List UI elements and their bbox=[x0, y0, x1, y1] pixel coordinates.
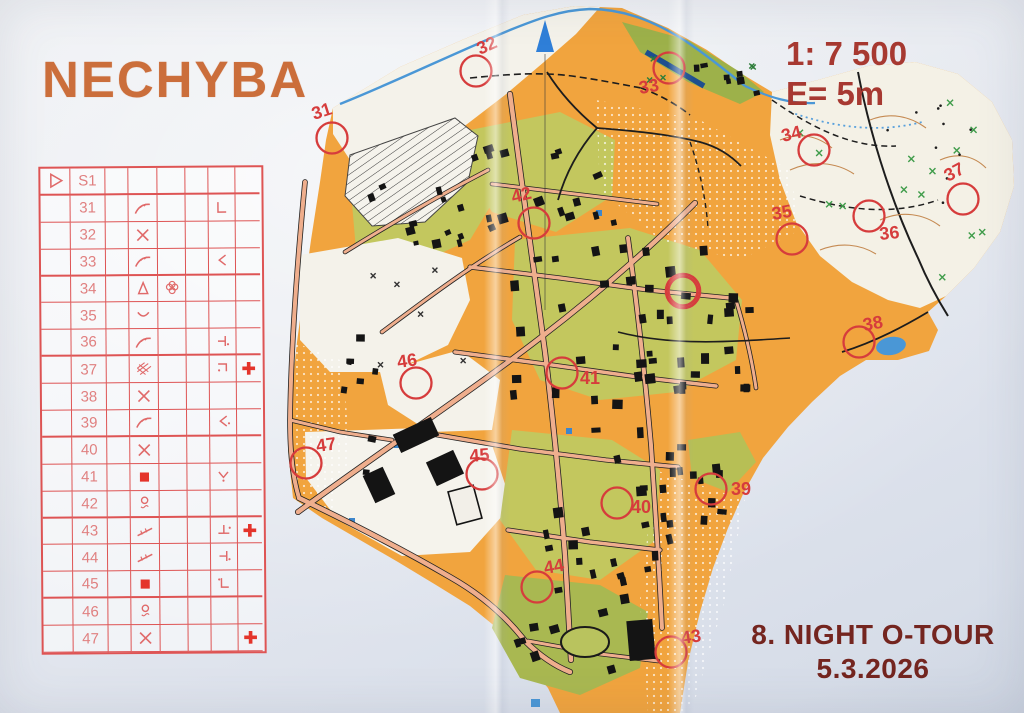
card-cell bbox=[106, 249, 129, 276]
card-cell bbox=[159, 410, 187, 437]
card-cell: 47 bbox=[74, 625, 109, 652]
card-cell bbox=[161, 625, 189, 652]
card-cell bbox=[160, 544, 188, 571]
control-description-sheet: S13132333435363738394041424344454647 bbox=[38, 165, 266, 655]
card-cell bbox=[211, 490, 238, 517]
angle-left-icon bbox=[209, 248, 236, 275]
control-number-cell: 33 bbox=[80, 253, 97, 270]
card-cell bbox=[157, 168, 185, 195]
fence-icon bbox=[131, 544, 160, 571]
crosshatch-icon bbox=[130, 356, 159, 383]
card-cell: 33 bbox=[71, 249, 106, 276]
card-cell bbox=[188, 490, 211, 517]
card-cell bbox=[108, 545, 131, 572]
corner-icon bbox=[208, 194, 235, 221]
first-aid-icon bbox=[238, 517, 262, 544]
control-number-cell: 39 bbox=[81, 414, 98, 431]
card-cell bbox=[160, 490, 188, 517]
card-cell bbox=[187, 410, 210, 437]
control-number: 38 bbox=[861, 312, 884, 335]
card-cell bbox=[186, 302, 209, 329]
card-cell bbox=[158, 248, 186, 275]
card-cell: 37 bbox=[72, 357, 107, 384]
card-cell bbox=[238, 571, 262, 598]
card-cell bbox=[187, 383, 210, 410]
control-number-cell: 37 bbox=[80, 361, 97, 378]
card-cell bbox=[237, 382, 261, 409]
control-number-cell: 31 bbox=[79, 200, 96, 217]
card-cell bbox=[187, 463, 210, 490]
start-code: S1 bbox=[78, 172, 96, 189]
card-cell bbox=[106, 222, 129, 249]
earth-bank-icon bbox=[129, 329, 158, 356]
card-cell bbox=[236, 302, 260, 329]
card-cell bbox=[108, 518, 131, 545]
card-cell bbox=[43, 599, 73, 626]
vee-dot-icon bbox=[210, 463, 237, 490]
fence-icon bbox=[131, 518, 160, 545]
card-cell: 31 bbox=[71, 195, 106, 222]
contour-interval: E= 5m bbox=[786, 74, 907, 114]
card-cell bbox=[160, 598, 188, 625]
card-cell bbox=[44, 626, 74, 653]
map-photo: 3132333435363738394041424344454647 NECHY… bbox=[0, 0, 1024, 713]
card-cell bbox=[235, 167, 259, 194]
crossing-icon bbox=[130, 383, 159, 410]
card-cell bbox=[211, 598, 238, 625]
control-number: 45 bbox=[469, 444, 491, 466]
card-cell bbox=[210, 383, 237, 410]
spring-icon bbox=[131, 491, 160, 518]
map-title: NECHYBA bbox=[42, 50, 308, 109]
card-cell bbox=[187, 437, 210, 464]
card-cell bbox=[160, 571, 188, 598]
card-cell bbox=[236, 329, 260, 356]
card-cell bbox=[128, 168, 157, 195]
event-name: 8. NIGHT O-TOUR bbox=[728, 618, 1018, 652]
control-number: 47 bbox=[315, 433, 338, 456]
control-number: 36 bbox=[878, 222, 900, 244]
card-cell bbox=[185, 194, 208, 221]
control-number: 46 bbox=[396, 349, 419, 372]
control-number: 43 bbox=[680, 625, 703, 648]
card-cell bbox=[41, 303, 71, 330]
card-cell bbox=[158, 302, 186, 329]
control-number-cell: 45 bbox=[82, 576, 99, 593]
card-cell bbox=[42, 437, 72, 464]
card-cell: 41 bbox=[72, 464, 107, 491]
card-cell: 38 bbox=[72, 383, 107, 410]
control-number: 40 bbox=[631, 497, 651, 517]
control-number-cell: 43 bbox=[81, 522, 98, 539]
control-number-cell: 40 bbox=[81, 442, 98, 459]
card-cell bbox=[160, 517, 188, 544]
start-triangle-icon bbox=[40, 169, 70, 196]
card-cell bbox=[159, 356, 187, 383]
card-cell bbox=[157, 195, 185, 222]
stadium-track bbox=[561, 627, 609, 657]
card-cell bbox=[41, 330, 71, 357]
event-date: 5.3.2026 bbox=[728, 652, 1018, 686]
event-block: 8. NIGHT O-TOUR 5.3.2026 bbox=[728, 618, 1018, 686]
card-cell bbox=[186, 275, 209, 302]
card-cell bbox=[187, 356, 210, 383]
card-cell bbox=[188, 544, 211, 571]
card-cell bbox=[188, 517, 211, 544]
control-number: 39 bbox=[731, 479, 751, 499]
card-cell bbox=[188, 571, 211, 598]
corner-top-dot-icon bbox=[210, 356, 237, 383]
card-cell: 32 bbox=[71, 222, 106, 249]
card-cell: 42 bbox=[73, 491, 108, 518]
card-cell bbox=[41, 249, 71, 276]
card-cell bbox=[108, 491, 131, 518]
card-cell bbox=[209, 302, 236, 329]
card-cell bbox=[238, 544, 262, 571]
card-cell bbox=[189, 625, 212, 652]
card-cell bbox=[238, 597, 262, 624]
card-cell bbox=[42, 357, 72, 384]
card-cell bbox=[106, 330, 129, 357]
card-cell bbox=[106, 276, 129, 303]
card-cell bbox=[238, 490, 262, 517]
card-cell bbox=[107, 437, 130, 464]
tbar-dot-icon bbox=[209, 329, 236, 356]
control-number-cell: 42 bbox=[81, 495, 98, 512]
tbar-dot-icon bbox=[211, 544, 238, 571]
control-number-cell: 32 bbox=[79, 227, 96, 244]
card-cell bbox=[188, 598, 211, 625]
card-cell bbox=[109, 625, 132, 652]
card-cell bbox=[41, 276, 71, 303]
card-cell bbox=[185, 168, 208, 195]
card-cell bbox=[209, 221, 236, 248]
card-cell bbox=[42, 464, 72, 491]
card-cell bbox=[107, 356, 130, 383]
card-cell bbox=[210, 436, 237, 463]
card-cell bbox=[159, 383, 187, 410]
first-aid-icon bbox=[238, 624, 262, 651]
card-cell bbox=[107, 383, 130, 410]
card-cell: 40 bbox=[72, 437, 107, 464]
card-cell bbox=[106, 303, 129, 330]
corner-left-dot-icon bbox=[211, 571, 238, 598]
building-icon bbox=[130, 464, 159, 491]
card-cell bbox=[237, 463, 261, 490]
tack-up-dot-icon bbox=[211, 517, 238, 544]
card-cell bbox=[43, 545, 73, 572]
card-cell bbox=[236, 275, 260, 302]
first-aid-icon bbox=[237, 355, 261, 382]
card-cell bbox=[43, 491, 73, 518]
control-number-cell: 47 bbox=[82, 630, 99, 647]
card-cell bbox=[108, 572, 131, 599]
card-cell bbox=[158, 222, 186, 249]
card-cell bbox=[237, 409, 261, 436]
card-cell bbox=[105, 195, 128, 222]
card-cell bbox=[159, 437, 187, 464]
earth-bank-icon bbox=[129, 249, 158, 276]
card-cell: 45 bbox=[73, 572, 108, 599]
card-cell bbox=[236, 221, 260, 248]
scale-ratio: 1: 7 500 bbox=[786, 34, 907, 74]
crossing-icon bbox=[129, 222, 158, 249]
card-cell bbox=[107, 410, 130, 437]
card-cell bbox=[42, 411, 72, 438]
crossing-icon bbox=[130, 437, 159, 464]
card-cell bbox=[41, 222, 71, 249]
control-number-cell: 41 bbox=[81, 469, 98, 486]
control-number-cell: 38 bbox=[81, 388, 98, 405]
card-cell bbox=[158, 329, 186, 356]
control-number: 44 bbox=[542, 555, 565, 578]
control-number: 35 bbox=[770, 201, 793, 224]
card-cell bbox=[105, 168, 128, 195]
card-cell bbox=[208, 167, 235, 194]
card-cell: 44 bbox=[73, 545, 108, 572]
spring-icon bbox=[131, 598, 160, 625]
card-cell bbox=[209, 275, 236, 302]
card-cell bbox=[42, 384, 72, 411]
card-cell: 46 bbox=[73, 599, 108, 626]
card-cell bbox=[236, 248, 260, 275]
card-cell bbox=[41, 195, 71, 222]
control-number: 41 bbox=[580, 368, 600, 388]
card-cell bbox=[235, 194, 259, 221]
card-cell bbox=[212, 625, 239, 652]
knoll-icon bbox=[129, 276, 158, 303]
crossing-icon bbox=[132, 625, 161, 652]
control-number: 33 bbox=[637, 75, 660, 98]
card-cell: 34 bbox=[71, 276, 106, 303]
card-cell bbox=[186, 221, 209, 248]
card-cell bbox=[107, 464, 130, 491]
depression-icon bbox=[129, 302, 158, 329]
control-number-cell: 35 bbox=[80, 307, 97, 324]
control-number-cell: 36 bbox=[80, 334, 97, 351]
building-icon bbox=[131, 571, 160, 598]
card-cell bbox=[43, 572, 73, 599]
card-cell: 36 bbox=[71, 330, 106, 357]
map-scale-block: 1: 7 500 E= 5m bbox=[786, 34, 907, 114]
earth-bank-icon bbox=[128, 195, 157, 222]
card-cell bbox=[159, 464, 187, 491]
control-number-cell: 34 bbox=[80, 280, 97, 297]
copse-icon bbox=[158, 275, 186, 302]
card-cell bbox=[237, 436, 261, 463]
card-cell bbox=[43, 518, 73, 545]
card-cell bbox=[108, 598, 131, 625]
card-cell bbox=[186, 248, 209, 275]
control-number-cell: 44 bbox=[82, 549, 99, 566]
card-cell: 35 bbox=[71, 303, 106, 330]
angle-left-dot-icon bbox=[210, 409, 237, 436]
card-cell bbox=[186, 329, 209, 356]
card-cell: S1 bbox=[70, 168, 105, 195]
earth-bank-icon bbox=[130, 410, 159, 437]
card-cell: 43 bbox=[73, 518, 108, 545]
control-number-cell: 46 bbox=[82, 603, 99, 620]
card-cell: 39 bbox=[72, 410, 107, 437]
